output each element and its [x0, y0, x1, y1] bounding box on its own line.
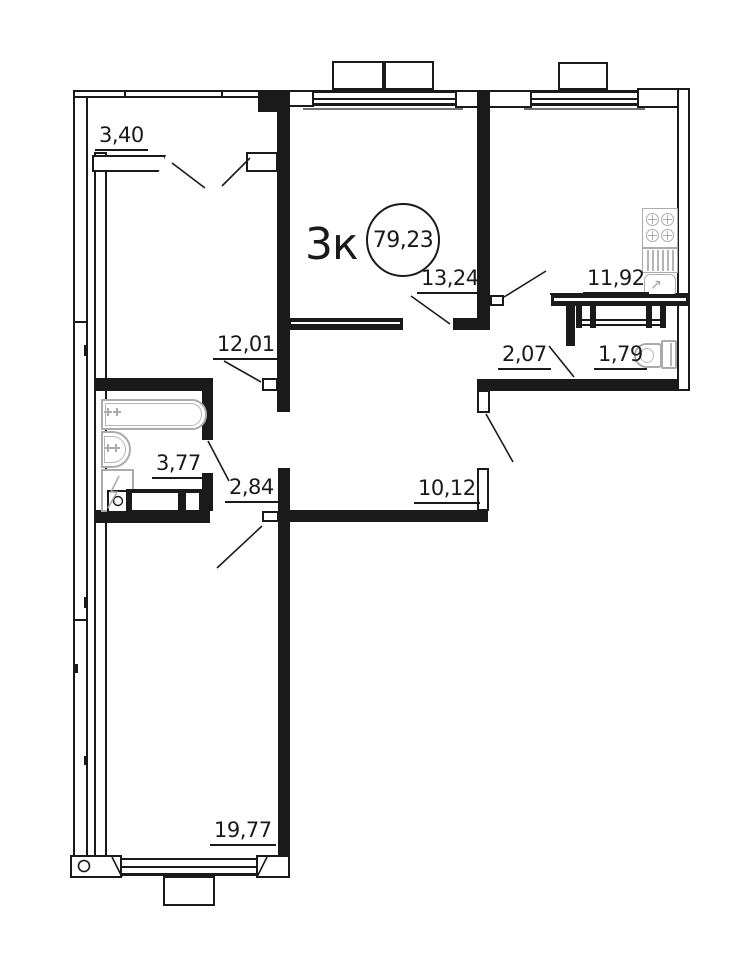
bottom-corner-left	[70, 855, 122, 878]
table-end-post	[566, 306, 575, 346]
glazing-mullion	[84, 756, 88, 765]
bedroom2-door-swing	[217, 526, 262, 568]
room-area-label-corridor: 10,12	[414, 476, 480, 504]
kitchen-door-swing	[504, 271, 546, 297]
sink-drain-icon: ↗	[650, 277, 662, 293]
corridor-bottom-wall	[278, 510, 488, 522]
table-rail	[576, 319, 666, 321]
room-area-label-bathroom: 3,77	[152, 451, 205, 479]
faucet-icon	[104, 408, 112, 416]
drainboard-line	[657, 250, 659, 271]
room-area-label-hallway: 2,07	[498, 342, 551, 370]
room-area-label-living: 13,24	[417, 266, 483, 294]
table-rail	[576, 324, 666, 326]
room-area-label-kitchen: 11,92	[583, 266, 649, 294]
window-midline	[532, 98, 637, 100]
glazing-mullion	[84, 597, 88, 608]
burner-icon	[646, 229, 659, 242]
room-area-label-bedroom1: 12,01	[213, 332, 279, 360]
entry-door-swing	[486, 414, 513, 462]
facade-pier	[288, 90, 314, 107]
burner-icon	[661, 229, 674, 242]
burner-icon	[661, 213, 674, 226]
toilet-tank-line	[670, 343, 672, 366]
faucet-icon	[113, 408, 121, 416]
window-mullion	[221, 90, 223, 98]
room-area-label-wc: 1,79	[594, 342, 647, 370]
room-area-label-bedroom2: 19,77	[210, 818, 276, 846]
drainboard-line	[652, 250, 654, 271]
glazing-divider	[73, 619, 88, 621]
right-outer-wall	[677, 88, 690, 391]
vent-box	[332, 61, 384, 90]
room-area-label-balcony: 3,40	[95, 123, 148, 151]
faucet-icon	[112, 444, 120, 452]
balcony-door-stub	[246, 152, 278, 172]
living-door-stub	[453, 318, 477, 330]
entry-door-stub	[477, 390, 490, 413]
room-area-label-hall: 2,84	[225, 475, 278, 503]
central-vertical-wall	[277, 90, 290, 412]
left-glazing-strip	[73, 90, 88, 858]
wc-door-swing	[549, 346, 574, 377]
bottom-vent-box	[163, 876, 215, 906]
balcony-door-swing	[172, 163, 205, 188]
glazing-mullion	[74, 664, 78, 673]
wall-cavity-line	[291, 322, 400, 324]
living-room-window	[314, 90, 455, 106]
window-midline	[122, 866, 258, 868]
apartment-type-label: 3к	[305, 219, 358, 270]
bedroom1-door-leader	[224, 361, 261, 382]
kitchen-window	[532, 90, 637, 106]
bathroom-top-wall	[94, 378, 213, 391]
living-room-bottom-wall	[288, 318, 403, 330]
drainboard-line	[667, 250, 669, 271]
faucet-icon	[104, 444, 112, 452]
floor-plan: ↗ 3к	[0, 0, 753, 960]
window-midline	[314, 98, 455, 100]
bedroom2-window	[122, 858, 258, 876]
bottom-corner-right	[256, 855, 290, 878]
counter-inset	[186, 493, 199, 510]
living-kitchen-wall	[477, 92, 490, 330]
washing-machine	[107, 490, 128, 513]
facade-pier	[455, 90, 532, 108]
bedroom1-door-frame	[262, 378, 278, 391]
living-door-swing	[411, 296, 450, 324]
drainboard-line	[672, 250, 674, 271]
toilet-tank	[661, 340, 677, 369]
bottom-room-door-stub	[262, 511, 279, 522]
total-area-value: 79,23	[373, 228, 433, 253]
wing-bottom-wall	[477, 379, 679, 391]
vent-box	[558, 62, 608, 90]
drainboard-line	[662, 250, 664, 271]
bottom-room-right-wall	[278, 468, 290, 860]
vent-box	[384, 61, 434, 90]
balcony-top-window	[73, 90, 260, 98]
balcony-window-sill	[92, 155, 166, 172]
counter-inset	[132, 493, 178, 510]
kitchen-door-stub	[490, 295, 504, 306]
window-mullion	[124, 90, 126, 98]
burner-icon	[646, 213, 659, 226]
glazing-mullion	[84, 345, 88, 356]
glazing-divider	[73, 321, 88, 323]
table-top-line	[554, 298, 686, 301]
